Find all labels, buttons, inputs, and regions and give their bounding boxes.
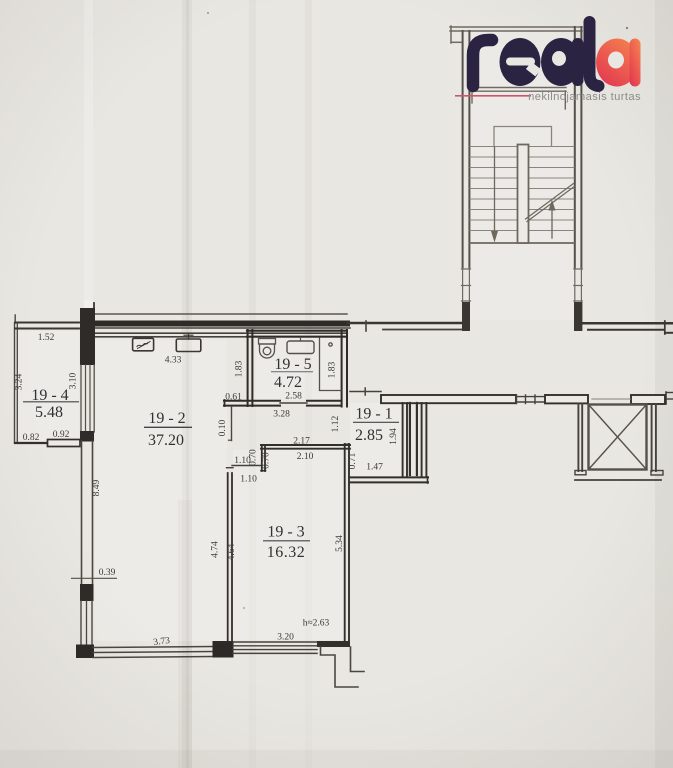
svg-text:0.10: 0.10 — [218, 419, 228, 436]
svg-text:0.70: 0.70 — [262, 452, 272, 469]
svg-text:1.83: 1.83 — [328, 361, 338, 378]
svg-text:4.72: 4.72 — [274, 374, 302, 391]
svg-text:37.20: 37.20 — [148, 432, 184, 449]
svg-text:3.10: 3.10 — [69, 372, 79, 389]
svg-text:0.61: 0.61 — [225, 393, 242, 403]
svg-text:8.49: 8.49 — [92, 479, 102, 496]
svg-text:16.32: 16.32 — [267, 544, 306, 561]
svg-text:h≈2.63: h≈2.63 — [303, 619, 330, 629]
svg-text:3.20: 3.20 — [277, 633, 294, 643]
svg-text:1.83: 1.83 — [235, 360, 245, 377]
svg-text:4.33: 4.33 — [165, 356, 182, 366]
svg-text:0.39: 0.39 — [99, 568, 116, 578]
svg-text:4.74: 4.74 — [211, 541, 221, 558]
svg-text:5.34: 5.34 — [335, 535, 345, 552]
svg-text:nekilnojamasis turtas: nekilnojamasis turtas — [528, 91, 641, 103]
svg-text:1.10: 1.10 — [240, 475, 257, 485]
svg-text:3.24: 3.24 — [15, 373, 25, 390]
svg-text:1.94: 1.94 — [389, 428, 399, 445]
svg-text:0.71: 0.71 — [348, 452, 358, 469]
svg-text:3.28: 3.28 — [273, 410, 290, 420]
svg-text:1.12: 1.12 — [331, 415, 341, 432]
svg-text:4.64: 4.64 — [227, 543, 237, 560]
svg-text:2.17: 2.17 — [293, 437, 310, 447]
svg-text:1.52: 1.52 — [38, 333, 55, 343]
svg-text:0.92: 0.92 — [53, 430, 70, 440]
svg-text:19 - 5: 19 - 5 — [274, 356, 311, 373]
svg-text:2.58: 2.58 — [285, 392, 302, 402]
svg-text:1.47: 1.47 — [366, 463, 383, 473]
svg-text:19 - 1: 19 - 1 — [355, 406, 392, 423]
svg-text:2.10: 2.10 — [297, 452, 314, 462]
svg-text:19 - 2: 19 - 2 — [148, 410, 185, 427]
svg-text:19 - 3: 19 - 3 — [267, 524, 304, 541]
svg-text:1.10: 1.10 — [234, 456, 251, 466]
svg-text:2.85: 2.85 — [355, 427, 383, 444]
svg-text:0.82: 0.82 — [23, 433, 40, 443]
svg-text:5.48: 5.48 — [35, 404, 63, 421]
